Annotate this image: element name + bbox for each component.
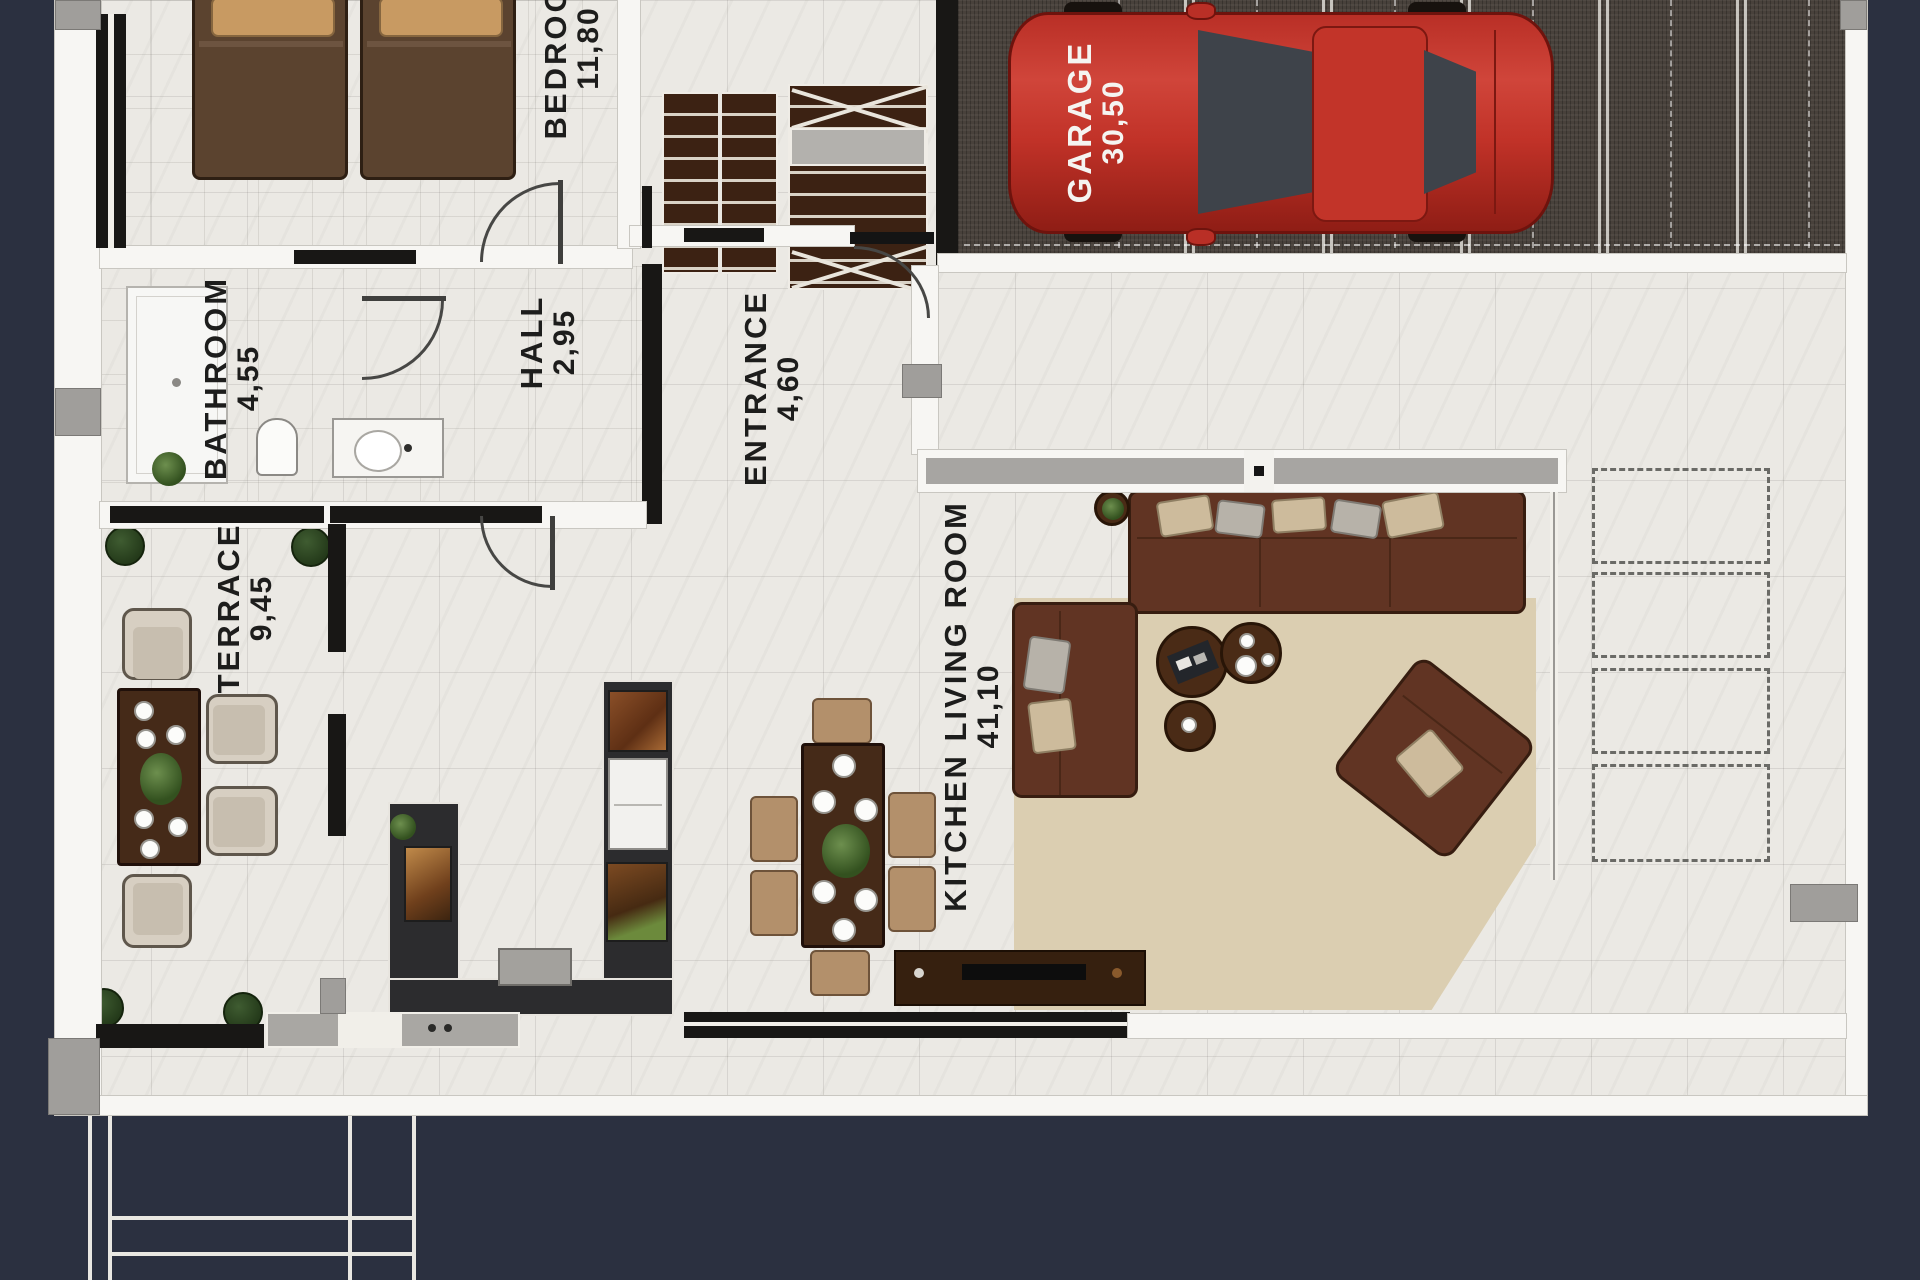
plate <box>854 798 878 822</box>
shower-drain <box>172 378 181 387</box>
room-area: 41,10 <box>973 663 1005 748</box>
sofa-loveseat <box>1012 602 1138 798</box>
bathroom-door-leaf <box>362 296 446 301</box>
living-top-window-glass <box>926 458 1558 484</box>
terrace-exit-door-gap <box>338 1014 402 1046</box>
terrace-bush <box>291 527 331 567</box>
garage-floor-line <box>1606 0 1609 256</box>
terrace-table-plant <box>140 753 182 805</box>
room-label-hall: HALL 2,95 <box>506 192 590 492</box>
faucet <box>404 444 412 452</box>
bedroom-window <box>96 14 126 248</box>
room-name: BEDROOM <box>539 0 572 139</box>
room-name: ENTRANCE <box>739 290 772 486</box>
door-handle-dot <box>428 1024 436 1032</box>
tv-cabinet <box>894 950 1146 1006</box>
bedroom-right-wall-segment <box>642 186 652 248</box>
living-right-glass-wall <box>1550 492 1558 880</box>
bed-pillow <box>211 0 335 37</box>
room-area: 9,45 <box>246 575 278 641</box>
car-roof <box>1312 26 1428 222</box>
coffee-table-tray <box>1167 640 1219 684</box>
dining-chair <box>750 870 798 936</box>
bed-2 <box>360 0 516 180</box>
bed-1 <box>192 0 348 180</box>
stairs-landing <box>790 128 926 166</box>
coffee-table-small <box>1220 622 1282 684</box>
kitchen-stove <box>608 758 668 850</box>
room-label-terrace: TERRACE 9,45 <box>203 458 287 758</box>
dashed-zone <box>1592 764 1770 862</box>
pillar <box>1840 0 1867 30</box>
room-area: 4,55 <box>233 345 265 411</box>
terrace-chair <box>122 874 192 948</box>
dashed-zone <box>1592 468 1770 564</box>
car-mirror <box>1186 2 1216 20</box>
sofa-pillow <box>1271 496 1327 534</box>
sink <box>354 430 402 472</box>
sofa-pillow <box>1330 498 1383 539</box>
terrace-kitchen-divider <box>328 524 346 652</box>
wall-right <box>1846 0 1867 1115</box>
cup <box>1181 717 1197 733</box>
plate <box>854 888 878 912</box>
kitchen-appliance <box>498 948 572 986</box>
room-area: 11,80 <box>573 6 605 89</box>
sofa-seat-divider <box>1389 537 1391 607</box>
plant-stand <box>1094 490 1130 526</box>
floor-plan: BEDROOM 11,80 GARAGE 30,50 BATHROOM 4,55… <box>0 0 1920 1280</box>
hall-entrance-divider <box>642 264 662 524</box>
kitchen-food-board <box>404 846 452 922</box>
tv-deco <box>1112 968 1122 978</box>
sofa-pillow <box>1027 698 1077 755</box>
pillar <box>1790 884 1858 922</box>
coffee-table-side <box>1164 700 1216 752</box>
garage-floor-line <box>1744 0 1747 256</box>
exterior-stair-step <box>108 1216 416 1220</box>
kitchen-herb-pot <box>390 814 416 840</box>
room-label-kitchen-living-room: KITCHEN LIVING ROOM 41,10 <box>930 466 1014 946</box>
dining-table <box>801 743 885 948</box>
terrace-kitchen-divider <box>328 714 346 836</box>
room-area: 2,95 <box>549 309 581 375</box>
room-area: 30,50 <box>1098 79 1130 164</box>
exterior-stair-line <box>88 1115 92 1280</box>
car-trunk-line <box>1494 30 1496 214</box>
tv <box>962 964 1086 980</box>
plate <box>812 790 836 814</box>
room-label-garage: GARAGE 30,50 <box>1054 0 1138 272</box>
room-area: 4,60 <box>773 355 805 421</box>
garage-floor-line <box>1598 0 1601 256</box>
terrace-bush <box>105 526 145 566</box>
tv-deco <box>914 968 924 978</box>
room-name: HALL <box>515 295 548 390</box>
room-label-entrance: ENTRANCE 4,60 <box>730 238 814 538</box>
terrace-bottom-window <box>96 1024 264 1048</box>
dining-chair <box>750 796 798 862</box>
room-name: KITCHEN LIVING ROOM <box>939 500 972 912</box>
bed-pillow <box>379 0 503 37</box>
living-bottom-window <box>684 1012 1130 1038</box>
plate <box>140 839 160 859</box>
stairs-divider <box>718 92 722 274</box>
dining-chair <box>812 698 872 744</box>
wall-gap-dot <box>1254 466 1264 476</box>
bed-blanket-fold <box>367 41 511 47</box>
car-mirror <box>1186 228 1216 246</box>
pillar <box>320 978 346 1014</box>
coffee-table-large <box>1156 626 1228 698</box>
plate <box>812 880 836 904</box>
stove-divider <box>614 804 662 806</box>
bedroom-bottom-window <box>294 250 416 264</box>
door-handle-dot <box>444 1024 452 1032</box>
room-name: GARAGE <box>1062 41 1098 204</box>
room-name: TERRACE <box>212 523 245 694</box>
bedroom-right-wall <box>618 0 640 248</box>
living-bottom-wall <box>1128 1014 1846 1038</box>
plate <box>134 809 154 829</box>
pillar <box>902 364 942 398</box>
dashed-zone <box>1592 668 1770 754</box>
pillar <box>48 1038 100 1115</box>
terrace-chair <box>122 608 192 680</box>
bathroom-vanity <box>332 418 444 478</box>
bed-blanket-fold <box>199 41 343 47</box>
sofa-seat-line <box>1137 537 1517 539</box>
garage-dashed-line <box>1808 0 1810 248</box>
terrace-table <box>117 688 201 866</box>
cup <box>1239 633 1255 649</box>
garage-divider-wall <box>936 0 958 268</box>
garage-dashed-line <box>1670 0 1672 248</box>
sofa-pillow <box>1022 635 1071 694</box>
cup <box>1235 655 1257 677</box>
plate <box>166 725 186 745</box>
dining-table-plant <box>822 824 870 878</box>
sofa-seat-divider <box>1259 537 1261 607</box>
kitchen-food-tray <box>606 862 668 942</box>
wall-left <box>55 0 101 1115</box>
terrace-chair <box>206 786 278 856</box>
cup <box>1261 653 1275 667</box>
front-door-leaf <box>850 232 934 244</box>
room-label-bedroom: BEDROOM 11,80 <box>530 0 614 198</box>
plate <box>168 817 188 837</box>
wall-bottom <box>55 1096 1867 1115</box>
dining-chair <box>810 950 870 996</box>
pillar <box>55 388 101 436</box>
room-name: BATHROOM <box>199 276 232 480</box>
plate <box>832 918 856 942</box>
hall-door-leaf <box>550 516 555 590</box>
plate <box>134 701 154 721</box>
dining-chair <box>888 866 936 932</box>
plant <box>1102 498 1124 520</box>
car-windshield <box>1198 22 1314 222</box>
bathroom-plant <box>152 452 186 486</box>
armchair-pillow <box>1394 727 1465 799</box>
sofa-pillow <box>1214 499 1266 539</box>
pillar <box>55 0 101 30</box>
plate <box>832 754 856 778</box>
dashed-zone <box>1592 572 1770 658</box>
garage-floor-line <box>1736 0 1739 256</box>
plate <box>136 729 156 749</box>
exterior-stair-step <box>108 1252 416 1256</box>
kitchen-cutting-board <box>608 690 668 752</box>
dining-chair <box>888 792 936 858</box>
